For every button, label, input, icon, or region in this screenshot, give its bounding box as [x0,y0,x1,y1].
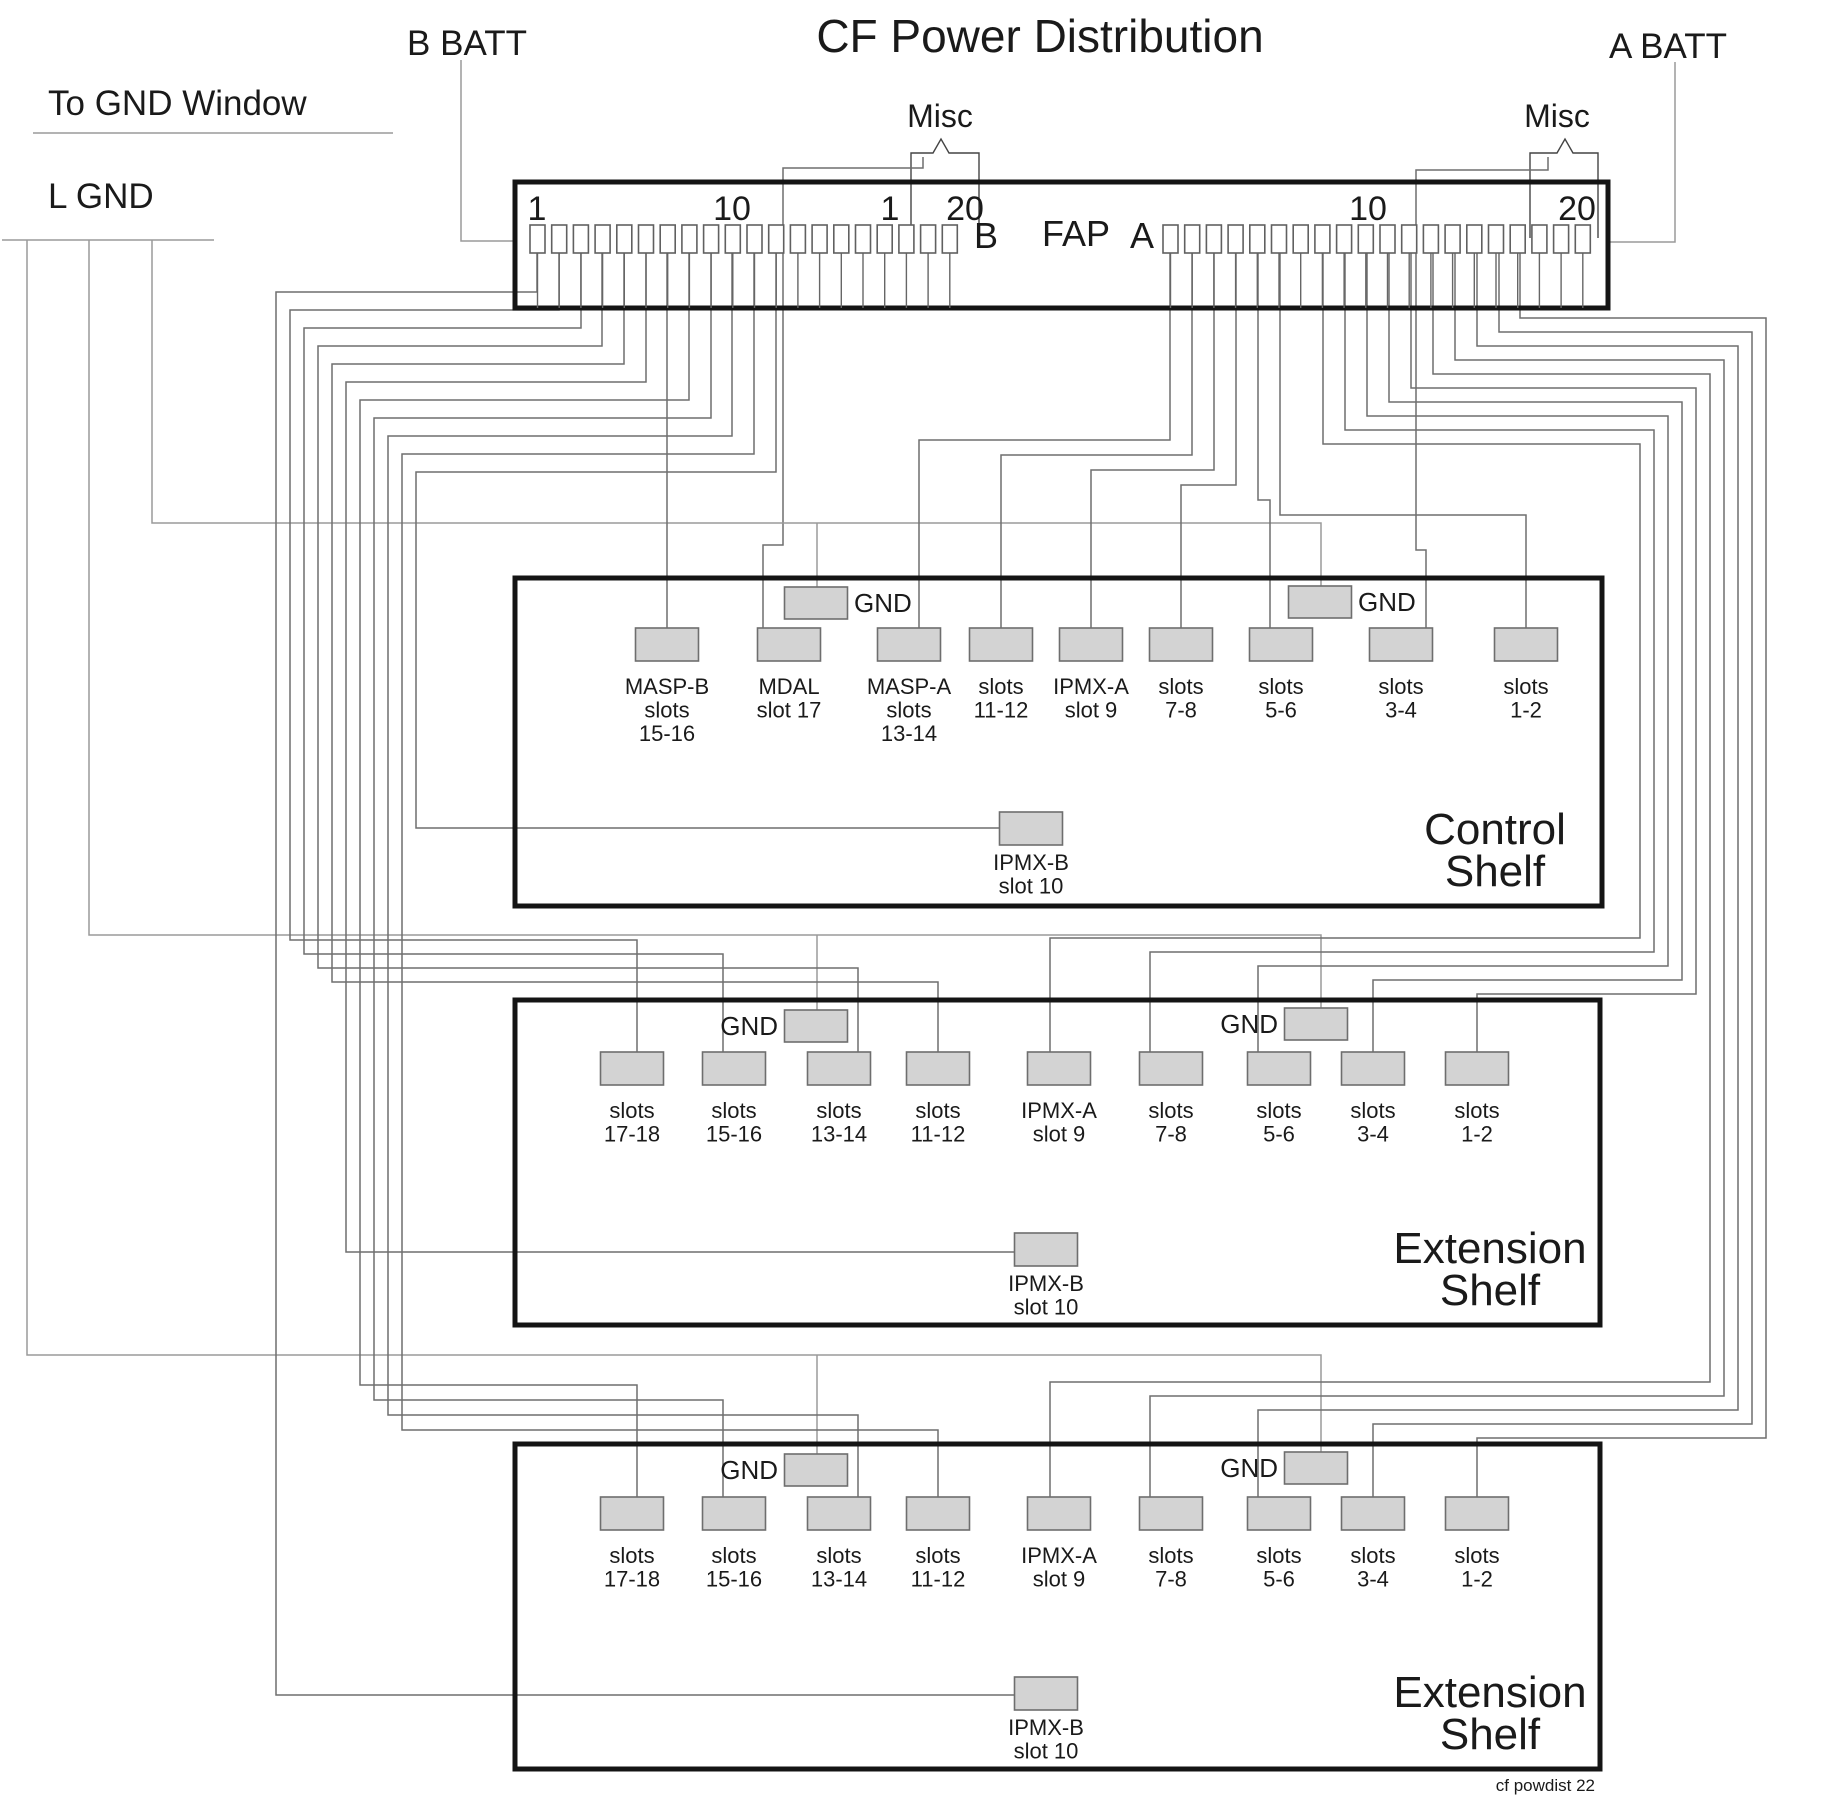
ipmx-b-label-2-1: slot 10 [1014,1739,1079,1764]
slot-block-label-2-5-1: 7-8 [1155,1567,1187,1592]
slot-block-0-7 [1370,628,1433,661]
slot-block-label-0-7-1: 3-4 [1385,698,1417,723]
slot-block-label-1-1-1: 15-16 [706,1122,762,1147]
slot-block-1-8 [1446,1052,1509,1085]
slot-block-label-2-0-0: slots [609,1543,654,1568]
slot-block-label-1-2-1: 13-14 [811,1122,867,1147]
fuse-a7 [1293,225,1308,253]
wire-b-batt-wire [461,60,515,241]
fuse-a16 [1489,225,1504,253]
slot-block-label-1-7-1: 3-4 [1357,1122,1389,1147]
slot-block-label-0-2-2: 13-14 [881,721,937,746]
slot-block-1-7 [1342,1052,1405,1085]
slot-block-label-0-4-0: IPMX-A [1053,674,1129,699]
gnd-label-0-1: GND [1358,587,1416,617]
fuse-number-a-1: 20 [1558,190,1596,228]
slot-block-1-0 [601,1052,664,1085]
gnd-block-2-1 [1285,1452,1348,1484]
slot-block-label-2-3-1: 11-12 [911,1567,966,1592]
slot-block-label-0-1-1: slot 17 [757,698,822,723]
shelf-layer: GNDGNDMASP-Bslots15-16MDALslot 17MASP-As… [515,578,1602,1769]
fuse-number-b-0: 1 [528,190,547,228]
wire-afuse16-ext2-s34 [1373,253,1752,1497]
b-batt-label: B BATT [407,24,527,63]
slot-block-label-0-7-0: slots [1378,674,1423,699]
slot-block-label-2-7-0: slots [1350,1543,1395,1568]
slot-block-label-2-1-0: slots [711,1543,756,1568]
to-gnd-window-label: To GND Window [48,84,307,123]
fuse-a19 [1554,225,1569,253]
slot-block-1-2 [808,1052,871,1085]
fuse-b15 [834,225,849,253]
fuse-a8 [1315,225,1330,253]
slot-block-label-0-2-1: slots [886,698,931,723]
slot-block-1-4 [1028,1052,1091,1085]
fuse-a2 [1185,225,1200,253]
slot-block-label-1-3-0: slots [915,1098,960,1123]
fuse-b20 [942,225,957,253]
slot-block-label-2-8-0: slots [1454,1543,1499,1568]
shelf-name-2-1: Shelf [1440,1710,1541,1759]
slot-block-label-2-6-1: 5-6 [1263,1567,1295,1592]
fuse-a9 [1337,225,1352,253]
fuse-b4 [595,225,610,253]
fuse-a4 [1228,225,1243,253]
slot-block-label-1-4-1: slot 9 [1033,1122,1086,1147]
gnd-label-1-0: GND [720,1011,778,1041]
fuse-b3 [573,225,588,253]
fuse-number-b-1: 10 [713,190,751,228]
wire-bfuse9-ext2-s1516 [374,253,723,1497]
fuse-b12 [769,225,784,253]
fuse-a1 [1163,225,1178,253]
slot-block-label-1-2-0: slots [816,1098,861,1123]
fuse-b13 [790,225,805,253]
slot-block-label-1-5-1: 7-8 [1155,1122,1187,1147]
slot-block-label-2-2-1: 13-14 [811,1567,867,1592]
fuse-b1 [530,225,545,253]
slot-block-label-2-6-0: slots [1256,1543,1301,1568]
slot-block-label-0-4-1: slot 9 [1065,698,1118,723]
fuse-b5 [617,225,632,253]
wire-bfuse11-ext2-s1112 [402,253,938,1497]
slot-block-label-2-0-1: 17-18 [604,1567,660,1592]
fuse-a5 [1250,225,1265,253]
ipmx-b-label-0-0: IPMX-B [993,850,1069,875]
fuse-number-b-2: 1 [881,190,900,228]
gnd-label-1-1: GND [1220,1009,1278,1039]
slot-block-label-1-7-0: slots [1350,1098,1395,1123]
slot-block-label-1-0-1: 17-18 [604,1122,660,1147]
slot-block-label-0-3-1: 11-12 [974,698,1029,723]
slot-block-label-2-3-0: slots [915,1543,960,1568]
ipmx-b-block-0 [1000,812,1063,845]
slot-block-1-6 [1248,1052,1311,1085]
fuse-b16 [856,225,871,253]
slot-block-0-8 [1495,628,1558,661]
slot-block-0-0 [636,628,699,661]
wire-bfuse8-ext2-s1718 [360,253,689,1497]
slot-block-label-0-8-1: 1-2 [1510,698,1542,723]
page-title: CF Power Distribution [816,10,1263,62]
slot-block-label-1-8-1: 1-2 [1461,1122,1493,1147]
gnd-block-1-0 [785,1010,848,1042]
slot-block-0-2 [878,628,941,661]
fap-panel: 1101201020 B FAP A [515,182,1608,308]
fuse-a3 [1206,225,1221,253]
slot-block-label-1-1-0: slots [711,1098,756,1123]
slot-block-label-0-6-0: slots [1258,674,1303,699]
fap-a-label: A [1130,215,1154,256]
ipmx-b-block-1 [1015,1233,1078,1266]
shelf-name-1-1: Shelf [1440,1266,1541,1315]
shelf-2: GNDGNDslots17-18slots15-16slots13-14slot… [515,1444,1600,1769]
slot-block-label-2-5-0: slots [1148,1543,1193,1568]
gnd-block-2-0 [785,1454,848,1486]
slot-block-2-8 [1446,1497,1509,1530]
slot-block-2-0 [601,1497,664,1530]
a-batt-label: A BATT [1609,27,1727,66]
slot-block-label-0-6-1: 5-6 [1265,698,1297,723]
slot-block-0-6 [1250,628,1313,661]
wire-bfuse10-ext2-s1314 [388,253,858,1497]
wire-bfuse2-ext1-s1718 [290,253,637,1052]
slot-block-label-0-5-1: 7-8 [1165,698,1197,723]
misc-b-label: Misc [907,98,973,134]
slot-block-label-1-6-1: 5-6 [1263,1122,1295,1147]
fap-b-label: B [974,215,998,256]
slot-block-label-1-6-0: slots [1256,1098,1301,1123]
gnd-label-2-1: GND [1220,1453,1278,1483]
cf-power-distribution-diagram: CF Power Distribution To GND Window L GN… [0,0,1840,1799]
wire-a-batt-wire [1608,62,1675,242]
fuse-a10 [1358,225,1373,253]
fuse-a13 [1423,225,1438,253]
slot-block-label-1-5-0: slots [1148,1098,1193,1123]
slot-block-label-0-8-0: slots [1503,674,1548,699]
slot-block-label-0-2-0: MASP-A [867,674,952,699]
gnd-block-0-1 [1289,586,1352,618]
slot-block-2-6 [1248,1497,1311,1530]
ipmx-b-block-2 [1015,1677,1078,1710]
slot-block-label-1-8-0: slots [1454,1098,1499,1123]
slot-block-label-2-4-1: slot 9 [1033,1567,1086,1592]
slot-block-0-5 [1150,628,1213,661]
slot-block-label-0-5-0: slots [1158,674,1203,699]
slot-block-label-1-4-0: IPMX-A [1021,1098,1097,1123]
slot-block-0-4 [1060,628,1123,661]
fuse-b2 [552,225,567,253]
slot-block-2-1 [703,1497,766,1530]
slot-block-1-1 [703,1052,766,1085]
fuse-a11 [1380,225,1395,253]
slot-block-label-0-3-0: slots [978,674,1023,699]
slot-block-label-2-7-1: 3-4 [1357,1567,1389,1592]
slot-block-label-0-1-0: MDAL [758,674,819,699]
fuse-b10 [725,225,740,253]
slot-block-2-2 [808,1497,871,1530]
gnd-block-0-0 [785,587,848,619]
slot-block-1-5 [1140,1052,1203,1085]
wire-afuse10-ext1-s56 [1258,253,1668,1052]
ipmx-b-label-1-1: slot 10 [1014,1295,1079,1320]
slot-block-2-5 [1140,1497,1203,1530]
fuse-a18 [1532,225,1547,253]
fuse-b18 [899,225,914,253]
wire-bfuse1-ext2-ipmxb [276,253,1015,1695]
ipmx-b-label-2-0: IPMX-B [1008,1715,1084,1740]
slot-block-2-4 [1028,1497,1091,1530]
fuse-number-a-0: 10 [1349,190,1387,228]
l-gnd-label: L GND [48,177,154,216]
slot-block-label-2-4-0: IPMX-A [1021,1543,1097,1568]
shelf-0: GNDGNDMASP-Bslots15-16MDALslot 17MASP-As… [515,578,1602,906]
wire-lgnd-ext2 [27,240,1321,1452]
fuse-a20 [1575,225,1590,253]
fuse-a17 [1510,225,1525,253]
fuse-a6 [1272,225,1287,253]
slot-block-label-0-0-0: MASP-B [625,674,709,699]
ipmx-b-label-1-0: IPMX-B [1008,1271,1084,1296]
fuse-b7 [660,225,675,253]
fuse-b14 [812,225,827,253]
fuse-a15 [1467,225,1482,253]
fuse-b19 [921,225,936,253]
slot-block-label-1-3-1: 11-12 [911,1122,966,1147]
fuse-a14 [1445,225,1460,253]
gnd-block-1-1 [1285,1008,1348,1040]
fuse-b17 [877,225,892,253]
slot-block-2-3 [907,1497,970,1530]
shelf-name-0-1: Shelf [1445,847,1546,896]
gnd-label-0-0: GND [854,588,912,618]
footer-note: cf powdist 22 [1496,1776,1595,1795]
slot-block-label-0-0-1: slots [644,698,689,723]
wire-lgnd-ext1 [89,240,1321,1008]
fap-name-label: FAP [1042,213,1110,254]
fuse-a12 [1402,225,1417,253]
slot-block-label-2-8-1: 1-2 [1461,1567,1493,1592]
misc-a-label: Misc [1524,98,1590,134]
slot-block-0-3 [970,628,1033,661]
fuse-b8 [682,225,697,253]
fuse-b9 [704,225,719,253]
slot-block-label-2-2-0: slots [816,1543,861,1568]
shelf-1: GNDGNDslots17-18slots15-16slots13-14slot… [515,1000,1600,1325]
slot-block-label-2-1-1: 15-16 [706,1567,762,1592]
gnd-label-2-0: GND [720,1455,778,1485]
fuse-b6 [639,225,654,253]
slot-block-2-7 [1342,1497,1405,1530]
slot-block-label-1-0-0: slots [609,1098,654,1123]
slot-block-0-1 [758,628,821,661]
slot-block-1-3 [907,1052,970,1085]
fuse-b11 [747,225,762,253]
ipmx-b-label-0-1: slot 10 [999,874,1064,899]
slot-block-label-0-0-2: 15-16 [639,721,695,746]
